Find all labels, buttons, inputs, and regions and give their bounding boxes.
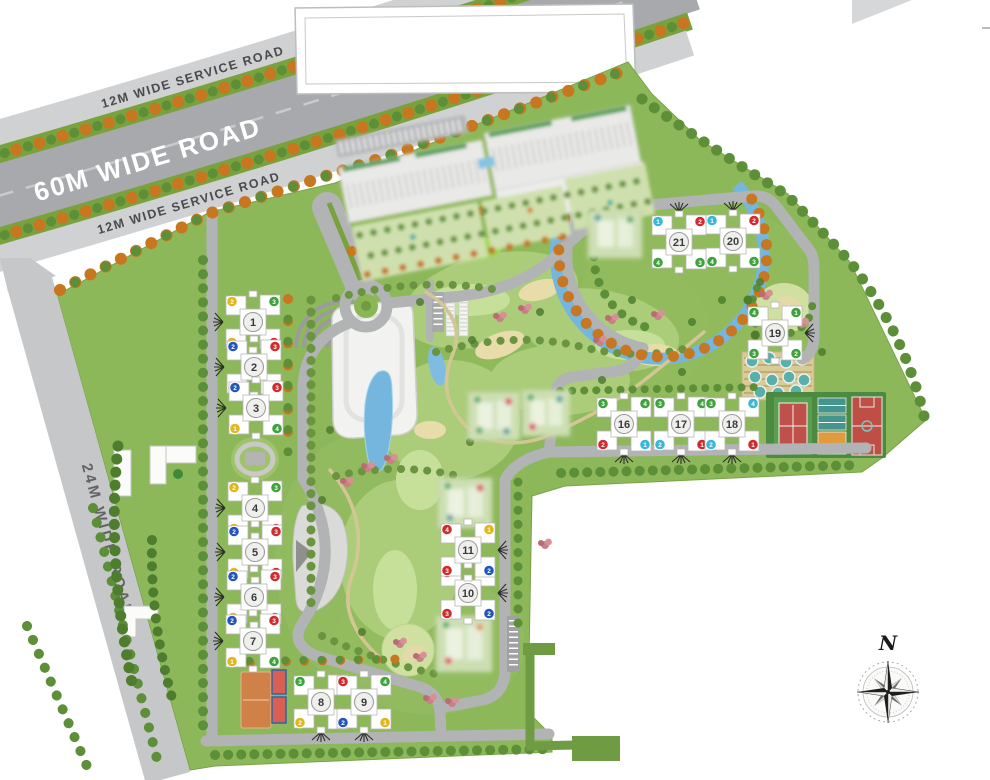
building-footprint bbox=[249, 610, 257, 616]
building-footprint bbox=[771, 358, 779, 364]
tower-wing-number: 1 bbox=[656, 219, 660, 226]
tower-wing-number: 1 bbox=[487, 527, 491, 534]
building-footprint bbox=[464, 575, 472, 581]
tower-wing-number: 3 bbox=[445, 611, 449, 618]
building-footprint bbox=[252, 433, 260, 439]
tower-wing-number: 3 bbox=[601, 401, 605, 408]
tower-wing-number: 1 bbox=[643, 442, 647, 449]
building-number: 9 bbox=[361, 697, 367, 709]
running-track bbox=[231, 437, 279, 481]
building-footprint bbox=[729, 266, 737, 272]
tower-wing-number: 3 bbox=[752, 351, 756, 358]
compass-north-label: N bbox=[878, 631, 898, 655]
building-footprint bbox=[251, 477, 259, 483]
tower-wing-number: 1 bbox=[710, 218, 714, 225]
tower-wing-number: 3 bbox=[658, 401, 662, 408]
building-footprint bbox=[729, 210, 737, 216]
tower-wing-number: 3 bbox=[275, 385, 279, 392]
building-footprint bbox=[771, 302, 779, 308]
building-footprint bbox=[249, 347, 257, 353]
unbuilt-blurred-block bbox=[468, 392, 520, 440]
building-footprint bbox=[251, 521, 259, 527]
tower-wing-number: 4 bbox=[275, 426, 279, 433]
building-number: 3 bbox=[253, 403, 259, 415]
tower-wing-number: 2 bbox=[698, 219, 702, 226]
building-footprint bbox=[251, 533, 259, 539]
tower-wing-number: 4 bbox=[752, 310, 756, 317]
site-plan-svg: 24M WIDE ROAD 12M WIDE SERVICE ROAD 60M … bbox=[0, 0, 990, 780]
tower-wing-number: 3 bbox=[709, 401, 713, 408]
southwest-courts bbox=[241, 670, 286, 728]
building-footprint bbox=[464, 519, 472, 525]
building-number: 2 bbox=[251, 362, 257, 374]
tower-wing-number: 4 bbox=[710, 259, 714, 266]
building-number: 4 bbox=[252, 503, 259, 515]
court bbox=[272, 697, 286, 723]
tower-wing-number: 2 bbox=[752, 218, 756, 225]
tower-wing-number: 3 bbox=[298, 679, 302, 686]
sand-bunker bbox=[414, 421, 446, 439]
building-footprint bbox=[249, 666, 257, 672]
tower-wing-number: 2 bbox=[709, 442, 713, 449]
building-number: 11 bbox=[462, 545, 474, 557]
building-footprint bbox=[317, 727, 325, 733]
tower-wing-number: 3 bbox=[341, 679, 345, 686]
tower-wing-number: 3 bbox=[272, 299, 276, 306]
building-footprint bbox=[249, 291, 257, 297]
tower-wing-number: 1 bbox=[794, 310, 798, 317]
site-master-plan: 24M WIDE ROAD 12M WIDE SERVICE ROAD 60M … bbox=[0, 0, 990, 780]
compass-rose-icon bbox=[857, 661, 919, 723]
tower-wing-number: 4 bbox=[272, 659, 276, 666]
building-number: 1 bbox=[250, 317, 256, 329]
boundary-strip-southeast bbox=[523, 643, 620, 761]
building-number: 19 bbox=[769, 328, 781, 340]
tower-wing-number: 2 bbox=[231, 574, 235, 581]
tower-wing-number: 3 bbox=[272, 618, 276, 625]
tower-wing-number: 2 bbox=[232, 529, 236, 536]
building-footprint bbox=[620, 449, 628, 455]
building-footprint bbox=[317, 671, 325, 677]
tower-wing-number: 3 bbox=[445, 568, 449, 575]
tower-wing-number: 2 bbox=[794, 351, 798, 358]
tower-wing-number: 3 bbox=[273, 344, 277, 351]
building-footprint bbox=[250, 622, 258, 628]
building-footprint bbox=[464, 618, 472, 624]
building-number: 10 bbox=[462, 588, 474, 600]
building-footprint bbox=[252, 377, 260, 383]
tower-wing-number: 1 bbox=[233, 426, 237, 433]
tower-wing-number: 3 bbox=[274, 529, 278, 536]
building-footprint bbox=[360, 727, 368, 733]
unbuilt-blurred-block bbox=[588, 210, 642, 258]
tower-wing-number: 2 bbox=[601, 442, 605, 449]
tower-wing-number: 4 bbox=[643, 401, 647, 408]
court bbox=[272, 670, 286, 694]
tower-wing-number: 1 bbox=[383, 720, 387, 727]
building-footprint bbox=[675, 267, 683, 273]
tower-wing-number: 3 bbox=[274, 485, 278, 492]
tower-wing-number: 4 bbox=[700, 401, 704, 408]
tower-wing-number: 4 bbox=[383, 679, 387, 686]
building-footprint bbox=[250, 566, 258, 572]
building-footprint bbox=[675, 211, 683, 217]
tower-wing-number: 3 bbox=[273, 574, 277, 581]
tower-wing-number: 2 bbox=[658, 442, 662, 449]
tower-wing-number: 2 bbox=[231, 344, 235, 351]
building-footprint bbox=[250, 336, 258, 342]
building-number: 6 bbox=[251, 592, 257, 604]
unbuilt-blurred-block bbox=[522, 390, 570, 436]
tower-wing-number: 1 bbox=[700, 442, 704, 449]
unbuilt-blurred-block bbox=[436, 616, 492, 672]
building-footprint bbox=[360, 671, 368, 677]
building-number: 17 bbox=[675, 419, 687, 431]
building-footprint bbox=[677, 393, 685, 399]
building-number: 16 bbox=[618, 419, 630, 431]
tower-wing-number: 2 bbox=[341, 720, 345, 727]
tower-wing-number: 3 bbox=[698, 260, 702, 267]
tower-wing-number: 2 bbox=[230, 618, 234, 625]
building-number: 7 bbox=[250, 636, 256, 648]
tower-wing-number: 3 bbox=[752, 259, 756, 266]
building-footprint bbox=[728, 449, 736, 455]
road-sliver bbox=[852, 0, 912, 24]
tower-wing-number: 2 bbox=[232, 485, 236, 492]
tower-wing-number: 2 bbox=[233, 385, 237, 392]
building-number: 20 bbox=[727, 236, 739, 248]
building-number: 5 bbox=[252, 547, 258, 559]
building-number: 8 bbox=[318, 697, 324, 709]
building-footprint bbox=[620, 393, 628, 399]
tower-wing-number: 2 bbox=[487, 568, 491, 575]
tower-wing-number: 1 bbox=[751, 442, 755, 449]
building-number: 21 bbox=[673, 237, 685, 249]
tower-wing-number: 4 bbox=[445, 527, 449, 534]
tower-wing-number: 2 bbox=[230, 299, 234, 306]
tower-wing-number: 4 bbox=[751, 401, 755, 408]
tower-wing-number: 4 bbox=[656, 260, 660, 267]
tower-wing-number: 1 bbox=[230, 659, 234, 666]
building-footprint bbox=[728, 393, 736, 399]
tower-wing-number: 2 bbox=[298, 720, 302, 727]
tower-wing-number: 2 bbox=[487, 611, 491, 618]
building-footprint bbox=[251, 577, 259, 583]
building-number: 18 bbox=[726, 419, 738, 431]
building-footprint bbox=[677, 449, 685, 455]
